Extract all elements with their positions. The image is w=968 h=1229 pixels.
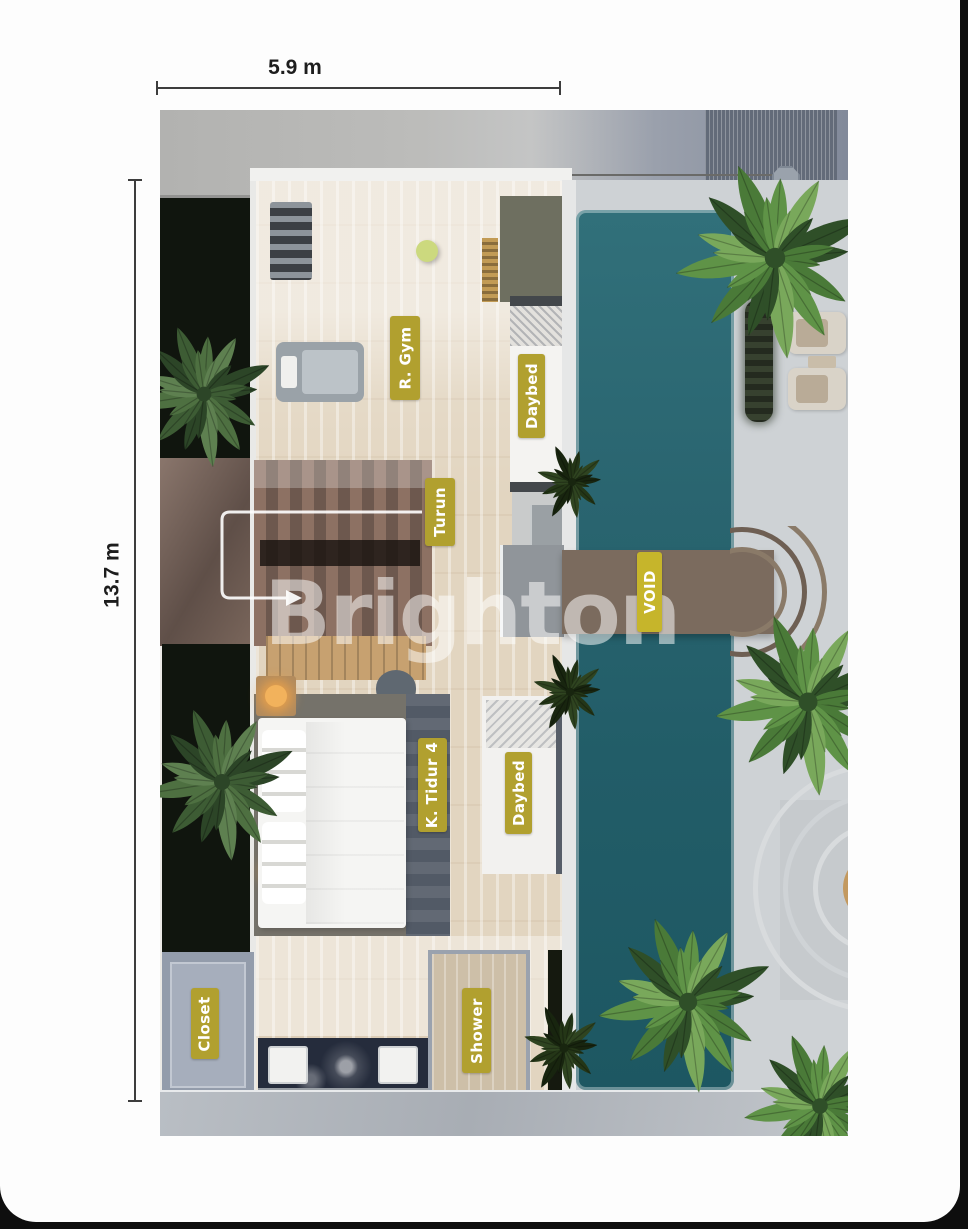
- bottom-driveway: [160, 1090, 848, 1136]
- palm-trunk: [745, 300, 773, 422]
- height-dimension-line: [134, 180, 136, 1102]
- void-label: VOID: [637, 552, 662, 632]
- width-dimension-tick-left: [156, 81, 158, 95]
- sun-lounger: [788, 312, 846, 354]
- swimming-pool: [576, 210, 734, 1090]
- bridge-steps: [730, 526, 848, 658]
- bed-duvet: [306, 722, 404, 924]
- daybed-lower-label: Daybed: [505, 752, 532, 834]
- slat-bench: [482, 238, 498, 302]
- bridge-landing: [500, 545, 564, 637]
- floor-plan-image: R. Gym Daybed Turun VOID K. Tidur 4 Dayb…: [160, 110, 848, 1136]
- stairs-down-label-text: Turun: [431, 487, 449, 537]
- pool-side-wall: [562, 180, 576, 1090]
- closet-label-text: Closet: [196, 996, 214, 1051]
- width-dimension-tick-right: [559, 81, 561, 95]
- width-dimension-line: [156, 87, 561, 89]
- treadmill-belt: [302, 350, 358, 394]
- dumbbell-rack: [270, 202, 312, 280]
- treadmill-console: [281, 356, 297, 388]
- height-dimension-text: 13.7 m: [101, 542, 125, 607]
- height-dimension-tick-top: [128, 179, 142, 181]
- screenshot-root: 5.9 m 13.7 m: [0, 0, 968, 1229]
- gym-label: R. Gym: [390, 316, 420, 400]
- lounger-cushion: [796, 375, 828, 403]
- sun-lounger: [788, 368, 846, 410]
- bed-pillows: [262, 730, 306, 812]
- bedroom-label-text: K. Tidur 4: [424, 742, 442, 828]
- daybed-lower-label-text: Daybed: [510, 760, 528, 826]
- gym-label-text: R. Gym: [396, 327, 414, 390]
- width-dimension-label: 5.9 m: [235, 56, 355, 80]
- stair-direction-path: [200, 500, 430, 620]
- shower-label: Shower: [462, 988, 491, 1073]
- bedside-lamp: [265, 685, 287, 707]
- gym-mat: [500, 196, 562, 302]
- bedroom-label: K. Tidur 4: [418, 738, 447, 832]
- daybed-upper-label: Daybed: [518, 354, 545, 438]
- daybed-upper-label-text: Daybed: [523, 363, 541, 429]
- side-table: [808, 356, 836, 368]
- daybed-frame: [510, 482, 564, 492]
- page-background: 5.9 m 13.7 m: [0, 0, 960, 1222]
- height-dimension-tick-bottom: [128, 1100, 142, 1102]
- planter-left-bottom: [162, 644, 252, 954]
- daybed-frame: [510, 296, 564, 306]
- daybed-upper-pillows: [510, 306, 564, 346]
- stair-landing: [254, 460, 432, 488]
- shower-label-text: Shower: [468, 998, 486, 1064]
- bed-pillows: [262, 822, 306, 904]
- exercise-ball: [416, 240, 438, 262]
- sink: [378, 1046, 418, 1084]
- top-interior-wall: [250, 168, 572, 181]
- stairs-down-label: Turun: [425, 478, 455, 546]
- daybed-lower-pillows: [486, 700, 560, 748]
- wall-unit: [530, 505, 562, 547]
- closet-label: Closet: [191, 988, 219, 1059]
- void-label-text: VOID: [641, 570, 659, 614]
- sink: [268, 1046, 308, 1084]
- lounger-cushion: [796, 319, 828, 347]
- step-arc: [730, 526, 827, 658]
- height-dimension-label: 13.7 m: [82, 544, 144, 606]
- planter-left-top: [160, 198, 252, 460]
